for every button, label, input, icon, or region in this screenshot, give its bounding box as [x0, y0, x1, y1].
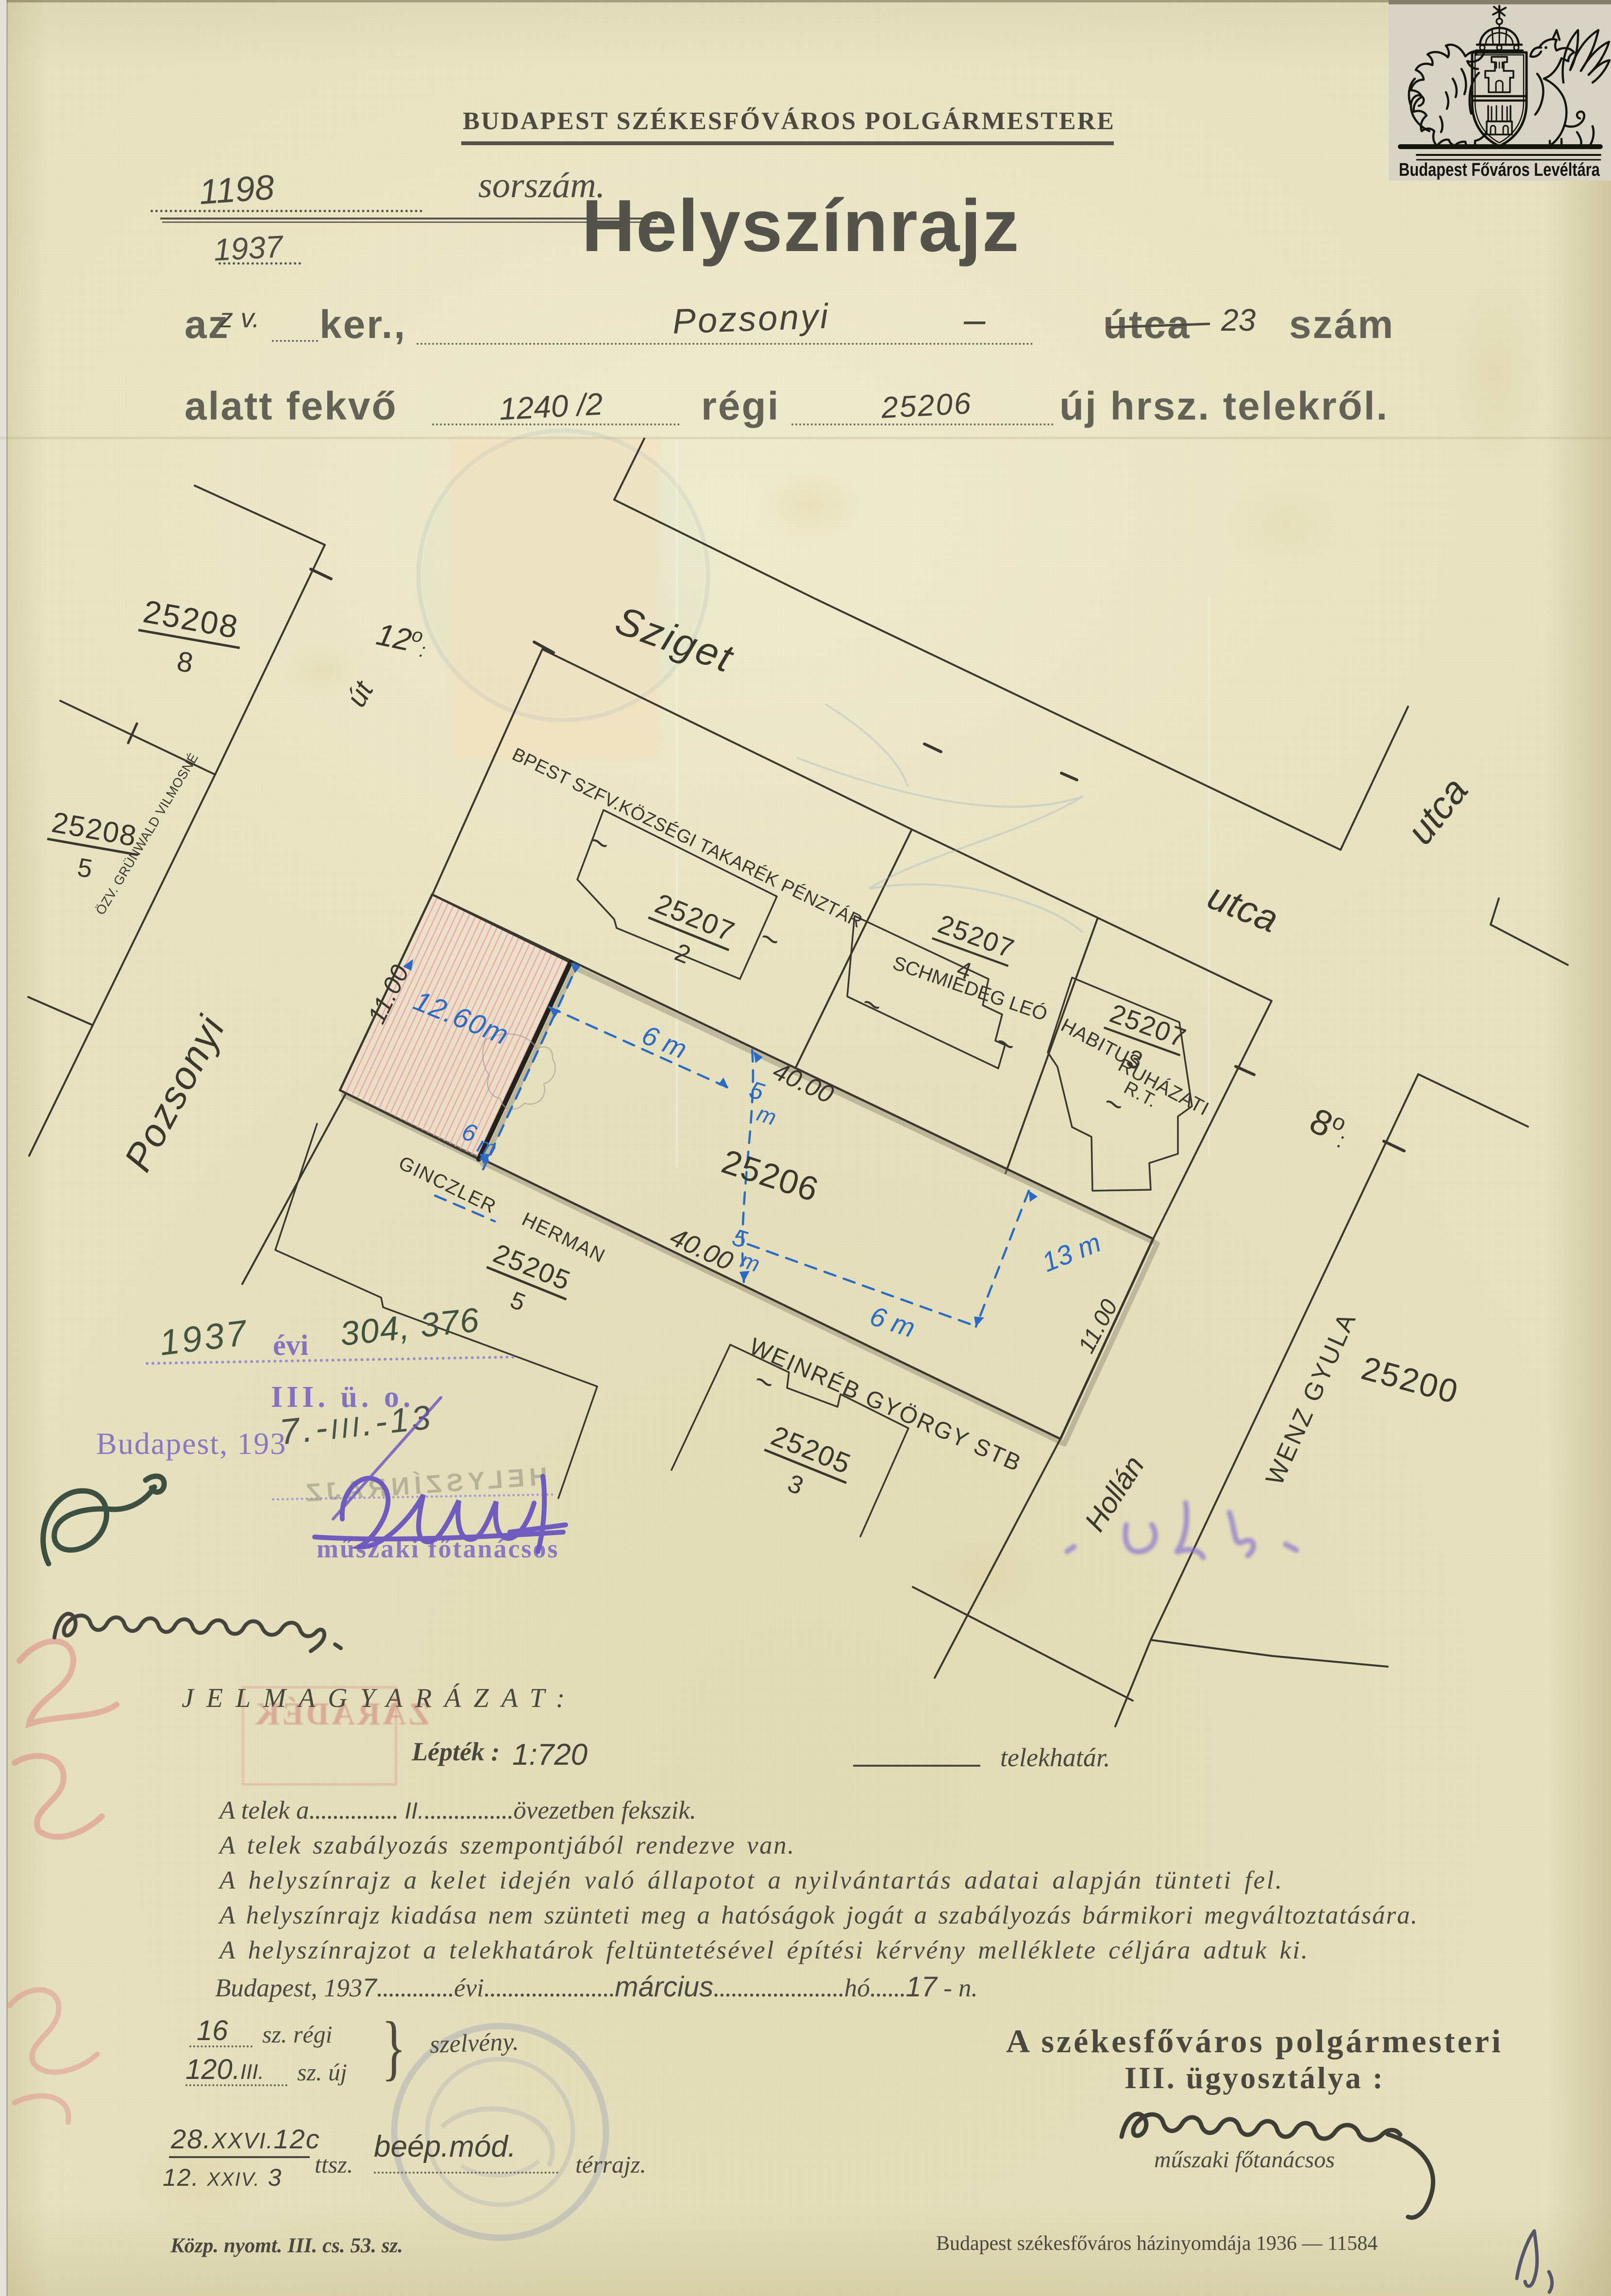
svg-text:Budapest Főváros Levéltára: Budapest Főváros Levéltára [1399, 160, 1600, 180]
